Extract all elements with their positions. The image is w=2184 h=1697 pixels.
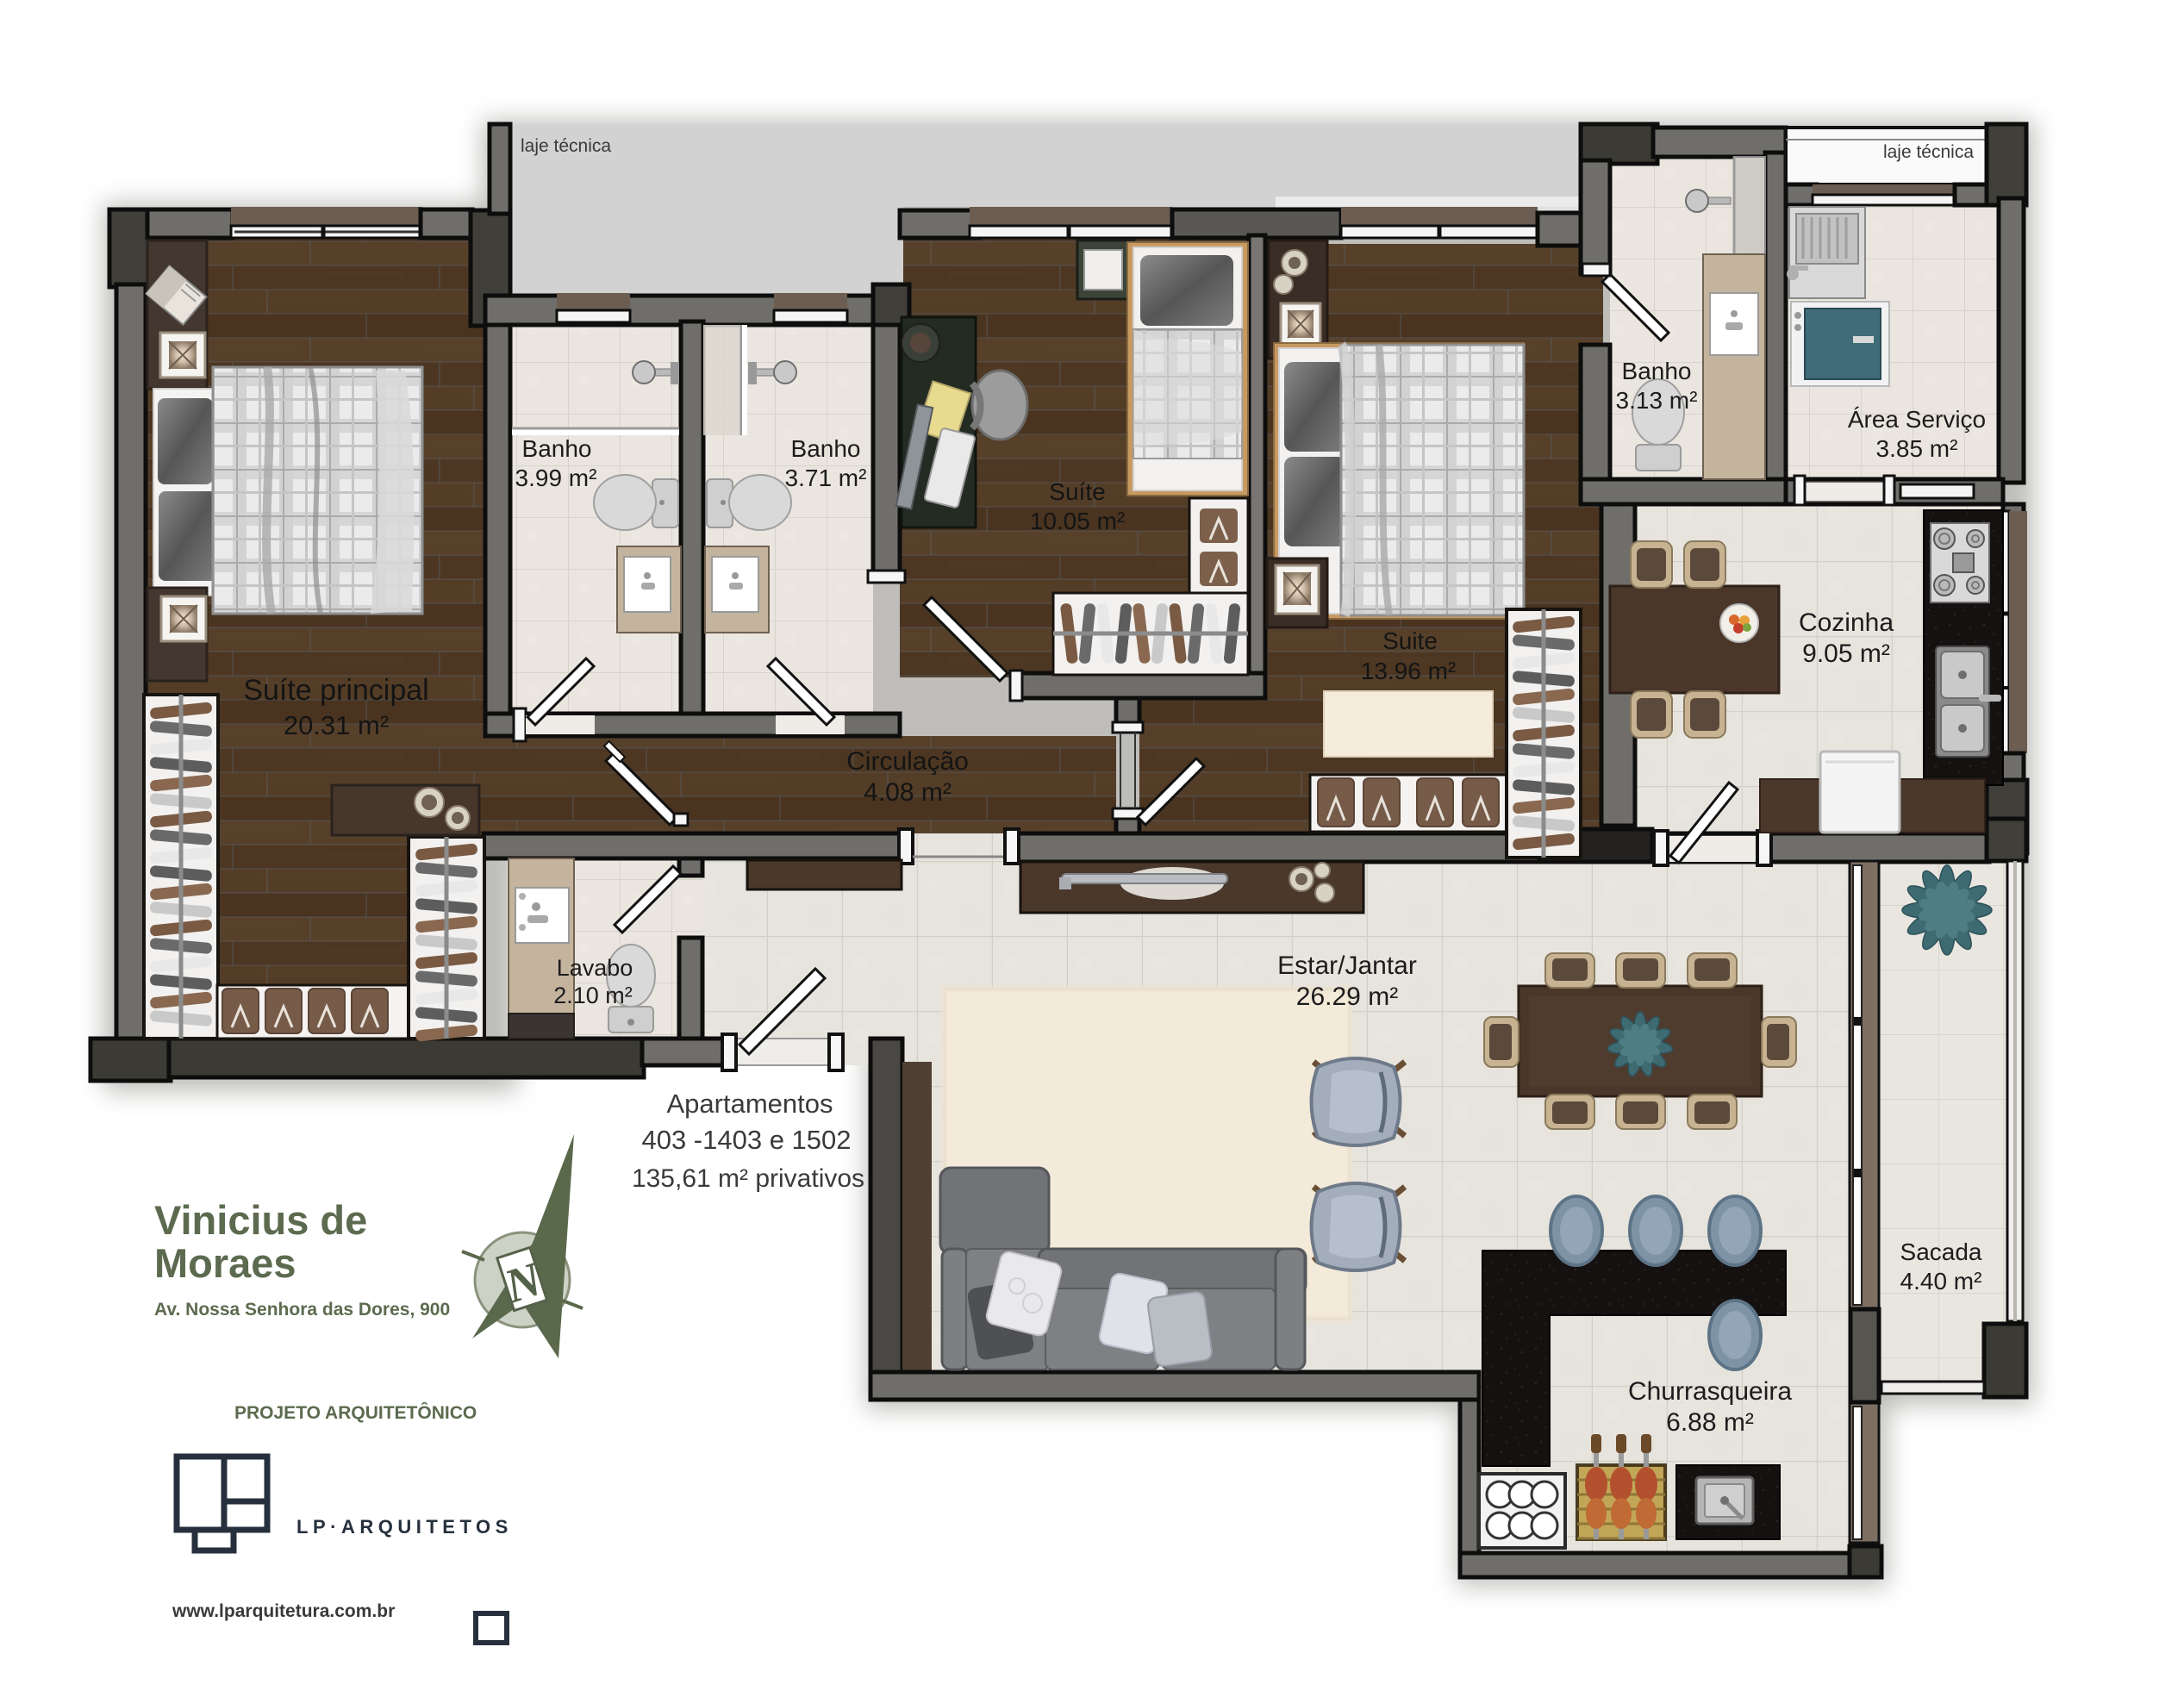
svg-text:3.71 m²: 3.71 m² xyxy=(785,465,867,491)
svg-text:Suite: Suite xyxy=(1382,627,1438,654)
svg-text:4.40 m²: 4.40 m² xyxy=(1900,1268,1982,1295)
svg-text:9.05 m²: 9.05 m² xyxy=(1802,639,1890,668)
svg-text:laje técnica: laje técnica xyxy=(1883,142,1974,162)
svg-text:Banho: Banho xyxy=(1622,358,1692,384)
svg-text:Suíte: Suíte xyxy=(1049,478,1105,505)
svg-text:Churrasqueira: Churrasqueira xyxy=(1628,1377,1792,1406)
svg-text:13.96 m²: 13.96 m² xyxy=(1361,658,1457,684)
svg-text:LP·ARQUITETOS: LP·ARQUITETOS xyxy=(296,1516,513,1538)
svg-text:Suíte principal: Suíte principal xyxy=(243,674,428,707)
svg-text:Área Serviço: Área Serviço xyxy=(1848,406,1986,433)
svg-text:Av. Nossa Senhora das Dores, 9: Av. Nossa Senhora das Dores, 900 xyxy=(154,1300,450,1320)
svg-text:3.13 m²: 3.13 m² xyxy=(1616,387,1698,414)
svg-text:Banho: Banho xyxy=(522,435,592,462)
svg-text:6.88 m²: 6.88 m² xyxy=(1666,1408,1754,1437)
svg-text:www.lparquitetura.com.br: www.lparquitetura.com.br xyxy=(172,1601,395,1621)
svg-text:135,61 m² privativos: 135,61 m² privativos xyxy=(632,1164,864,1193)
svg-text:4.08 m²: 4.08 m² xyxy=(864,778,952,807)
svg-text:Lavabo: Lavabo xyxy=(557,955,633,981)
svg-text:26.29 m²: 26.29 m² xyxy=(1296,983,1398,1011)
svg-text:2.10 m²: 2.10 m² xyxy=(553,983,633,1008)
svg-text:Estar/Jantar: Estar/Jantar xyxy=(1277,951,1417,980)
svg-text:10.05 m²: 10.05 m² xyxy=(1030,508,1126,534)
svg-text:Circulação: Circulação xyxy=(846,747,969,776)
svg-text:Cozinha: Cozinha xyxy=(1799,608,1894,637)
svg-text:Apartamentos: Apartamentos xyxy=(667,1089,833,1119)
svg-text:3.99 m²: 3.99 m² xyxy=(515,465,597,491)
svg-text:Sacada: Sacada xyxy=(1900,1238,1982,1265)
svg-text:laje técnica: laje técnica xyxy=(521,136,611,156)
svg-text:Banho: Banho xyxy=(791,435,861,462)
svg-text:20.31 m²: 20.31 m² xyxy=(284,710,389,740)
svg-text:403 -1403 e 1502: 403 -1403 e 1502 xyxy=(641,1125,851,1155)
svg-text:PROJETO ARQUITETÔNICO: PROJETO ARQUITETÔNICO xyxy=(234,1402,477,1423)
svg-text:Vinicius de: Vinicius de xyxy=(154,1197,367,1243)
svg-text:3.85 m²: 3.85 m² xyxy=(1876,435,1958,462)
svg-text:Moraes: Moraes xyxy=(154,1240,296,1286)
